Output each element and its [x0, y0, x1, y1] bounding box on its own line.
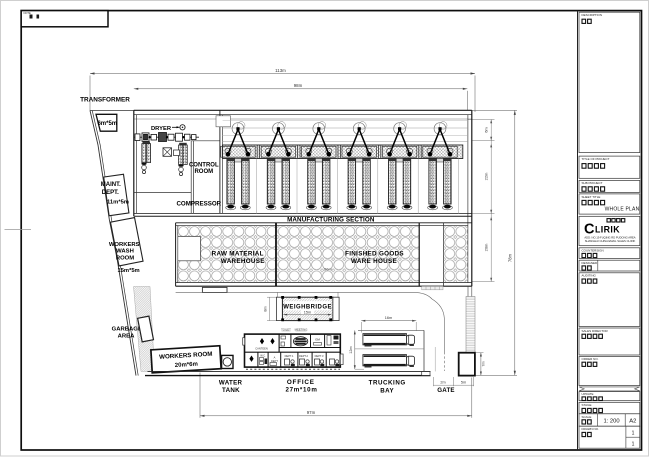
svg-text:MAINT.: MAINT.	[101, 182, 121, 188]
svg-text:UPDATE: UPDATE	[582, 392, 594, 396]
svg-text:15m*5m: 15m*5m	[117, 268, 139, 274]
svg-text:DEPT.3: DEPT.3	[315, 354, 324, 358]
svg-text:8m: 8m	[264, 306, 268, 311]
svg-text:78m: 78m	[507, 253, 512, 262]
svg-text:1: 1	[632, 442, 635, 448]
svg-text:WAREHOUSE: WAREHOUSE	[221, 258, 265, 265]
svg-text:97m: 97m	[307, 410, 316, 415]
svg-text:ROOM: ROOM	[116, 255, 134, 261]
svg-text:DEPT.1: DEPT.1	[285, 354, 294, 358]
svg-text:27m*10m: 27m*10m	[285, 387, 317, 394]
svg-text:1: 200: 1: 200	[603, 419, 619, 425]
svg-text:15m: 15m	[304, 311, 311, 315]
svg-text:NOTE: NOTE	[24, 11, 31, 15]
svg-text:SHEET TITLE: SHEET TITLE	[582, 195, 601, 199]
svg-text:GATE: GATE	[437, 387, 455, 394]
svg-text:1: 1	[632, 431, 635, 437]
svg-text:DEPT.2: DEPT.2	[299, 354, 308, 358]
svg-text:COMPRESSOR: COMPRESSOR	[176, 201, 221, 208]
svg-text:DEPT.: DEPT.	[102, 190, 119, 196]
svg-text:DRYER: DRYER	[151, 126, 172, 132]
svg-text:W.C.: W.C.	[260, 354, 266, 358]
svg-text:WHOLE PLAN: WHOLE PLAN	[605, 207, 640, 213]
svg-text:GARBAGE: GARBAGE	[112, 327, 142, 333]
svg-text:ORDER NO.: ORDER NO.	[582, 357, 599, 361]
svg-text:ADD: NO.19 FUQING RD PUDONG AR: ADD: NO.19 FUQING RD PUDONG AREA	[584, 235, 635, 239]
svg-text:DEPT: DEPT	[271, 359, 278, 363]
svg-text:113m: 113m	[275, 68, 286, 73]
svg-text:DESCRIPTION: DESCRIPTION	[582, 13, 603, 17]
svg-text:22m: 22m	[484, 172, 489, 180]
svg-text:TANK: TANK	[222, 387, 240, 394]
svg-text:DESIGNED: DESIGNED	[582, 261, 599, 265]
svg-text:WARE HOUSE: WARE HOUSE	[351, 258, 397, 265]
svg-text:CONTROL: CONTROL	[189, 162, 219, 168]
svg-text:SCALE: SCALE	[582, 415, 592, 419]
svg-text:FINISHED GOODS: FINISHED GOODS	[345, 250, 404, 257]
svg-text:11m*5m: 11m*5m	[107, 200, 129, 206]
svg-text:TRANSFORMER: TRANSFORMER	[80, 96, 130, 103]
svg-text:5m: 5m	[461, 380, 466, 384]
svg-text:AUDITING: AUDITING	[582, 274, 597, 278]
svg-text:12m: 12m	[349, 346, 353, 353]
svg-text:DRAWN NO.: DRAWN NO.	[582, 427, 600, 431]
svg-text:20m: 20m	[484, 243, 489, 251]
svg-text:ROOM: ROOM	[194, 169, 213, 175]
svg-text:SALES DIRECTOR: SALES DIRECTOR	[582, 329, 609, 333]
svg-text:CANTEEN: CANTEEN	[255, 346, 268, 350]
svg-text:6m: 6m	[484, 127, 489, 133]
svg-text:16m: 16m	[385, 316, 392, 320]
svg-text:RAW MATERIAL: RAW MATERIAL	[212, 250, 264, 257]
svg-text:MEETING: MEETING	[295, 327, 308, 331]
svg-text:COUNTERSIGN: COUNTERSIGN	[582, 248, 604, 252]
svg-text:OFFICE: OFFICE	[287, 379, 315, 386]
svg-text:TOILET: TOILET	[281, 327, 291, 331]
svg-text:WATER: WATER	[219, 379, 243, 386]
svg-text:LIRIK: LIRIK	[595, 225, 620, 235]
svg-text:6m*5m: 6m*5m	[97, 121, 117, 127]
svg-text:86m: 86m	[324, 267, 332, 272]
svg-text:A2: A2	[629, 419, 636, 425]
svg-text:STAGE: STAGE	[582, 403, 592, 407]
svg-text:BAY: BAY	[380, 388, 394, 395]
svg-text:WASH: WASH	[116, 249, 134, 255]
svg-text:AREA: AREA	[118, 333, 135, 339]
svg-text:WORKERS: WORKERS	[109, 242, 140, 248]
svg-text:98m: 98m	[294, 83, 303, 88]
svg-text:SHANGHAI CHINA EMAIL SALES CL: SHANGHAI CHINA EMAIL SALES CLIRIK	[585, 239, 636, 243]
svg-text:SUB PROJECT: SUB PROJECT	[582, 181, 603, 185]
svg-text:2m: 2m	[440, 380, 445, 384]
svg-text:TITLE OF PROJECT: TITLE OF PROJECT	[582, 157, 610, 161]
svg-text:7m: 7m	[481, 361, 485, 366]
svg-text:GM: GM	[315, 338, 320, 342]
svg-text:TRUCKING: TRUCKING	[369, 380, 406, 387]
svg-text:C: C	[584, 222, 595, 238]
